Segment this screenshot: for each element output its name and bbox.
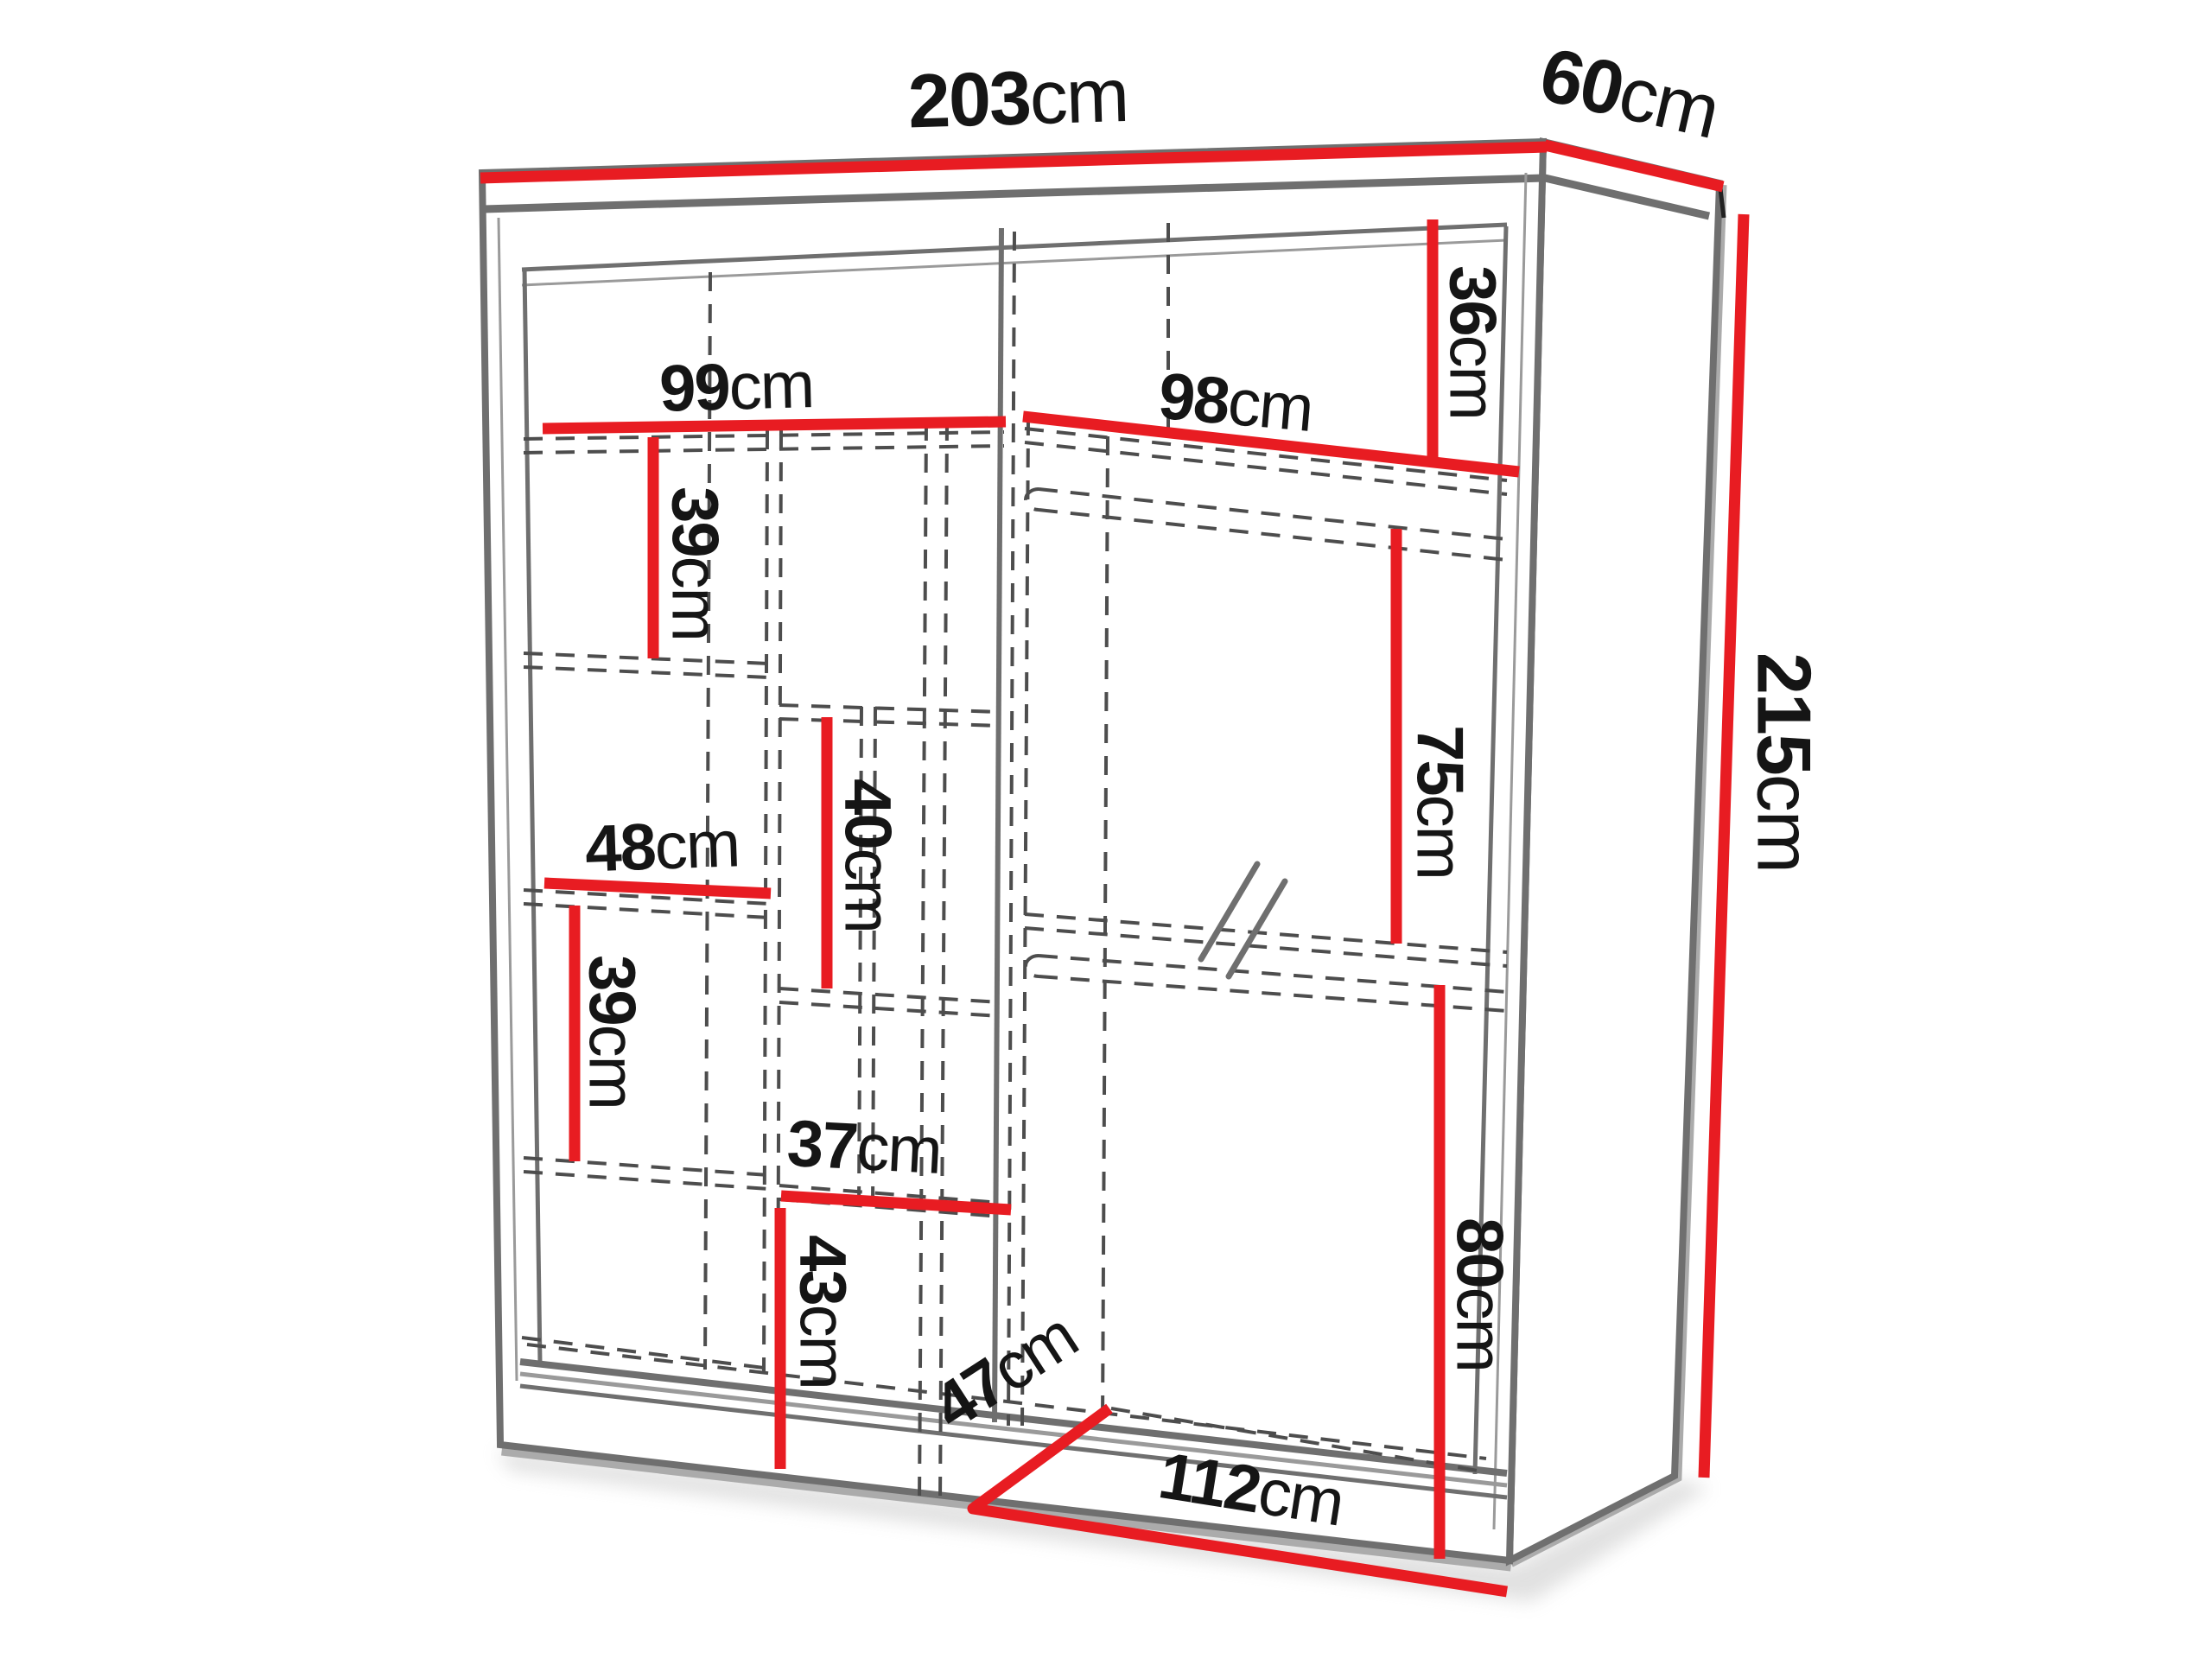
label-column-48: 48cm: [584, 807, 741, 886]
label-bottom-43: 43cm: [786, 1235, 860, 1389]
label-depth-60: 60cm: [1533, 31, 1726, 155]
wardrobe-dimension-diagram: 203cm 60cm 215cm 99cm 98cm 36cm 39cm 40c…: [0, 0, 2212, 1659]
label-hanging-80: 80cm: [1443, 1217, 1516, 1371]
diagram-canvas: 203cm 60cm 215cm 99cm 98cm 36cm 39cm 40c…: [0, 0, 2212, 1659]
label-shelf-39-upper: 39cm: [658, 486, 732, 640]
label-left-width-99: 99cm: [658, 348, 814, 426]
label-column-37: 37cm: [785, 1107, 943, 1188]
label-right-width-98: 98cm: [1156, 359, 1316, 446]
label-top-shelf-36: 36cm: [1436, 265, 1510, 419]
label-width-203: 203cm: [907, 52, 1129, 143]
label-height-215: 215cm: [1741, 652, 1827, 872]
label-shelf-40: 40cm: [831, 779, 905, 932]
label-hanging-75: 75cm: [1403, 725, 1477, 879]
label-shelf-39-lower: 39cm: [575, 955, 649, 1109]
